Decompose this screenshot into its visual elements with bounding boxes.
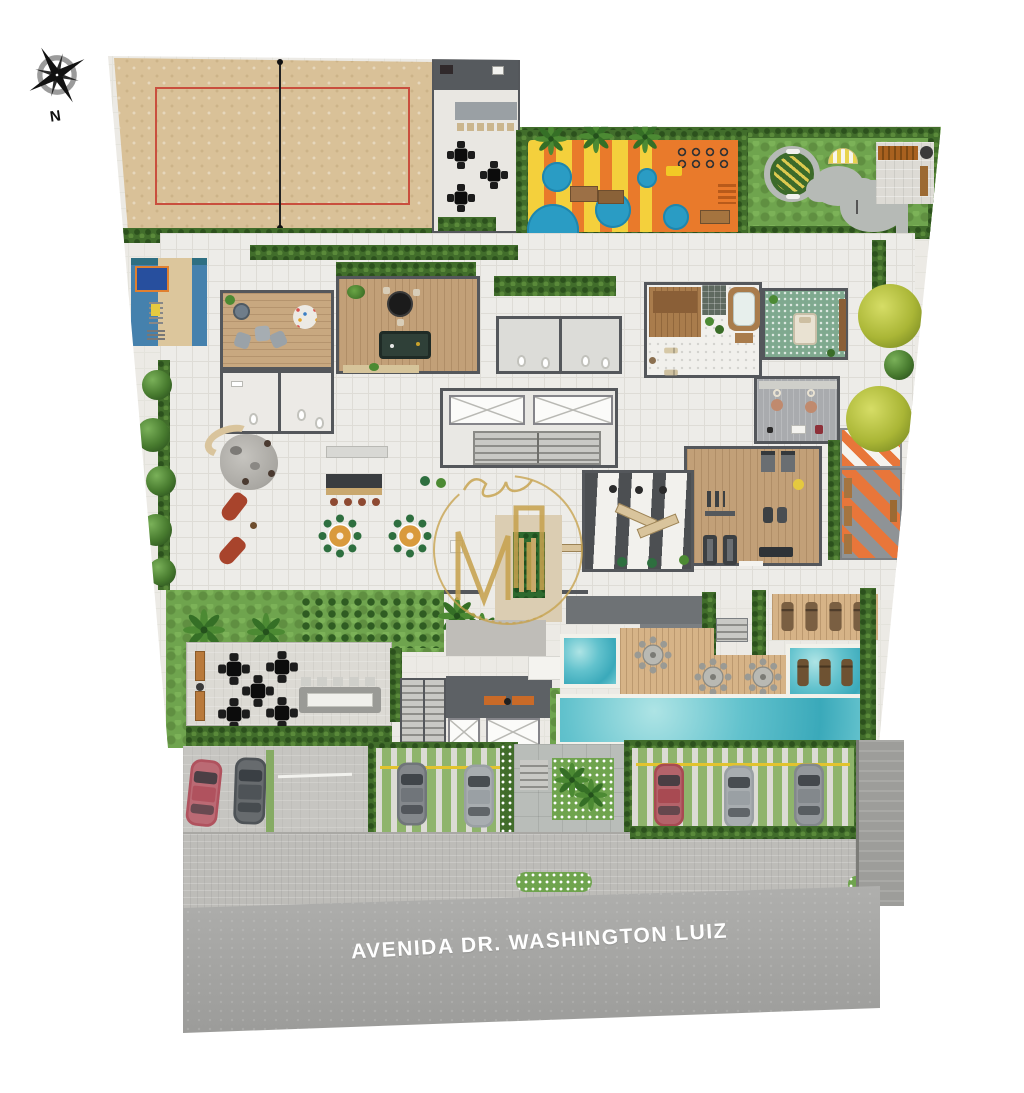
bench-icon bbox=[195, 691, 205, 721]
bar-counter bbox=[326, 474, 382, 492]
bench-icon bbox=[920, 166, 928, 196]
poker-table-icon bbox=[387, 291, 413, 317]
entrance-planter bbox=[552, 758, 614, 820]
bench-press-icon bbox=[703, 535, 717, 565]
hedge-row bbox=[250, 245, 518, 260]
table-cluster-icon bbox=[265, 696, 299, 730]
plant-icon bbox=[225, 295, 235, 305]
zone-parking bbox=[183, 746, 883, 836]
garage-ramp bbox=[856, 740, 904, 906]
gym-item bbox=[151, 304, 160, 316]
planter-pot bbox=[436, 478, 446, 488]
hedge-col bbox=[828, 440, 840, 560]
sun-lounger-icon bbox=[804, 599, 819, 634]
plant-icon bbox=[715, 325, 724, 334]
climbing-rings bbox=[676, 146, 732, 168]
bar-stool-icon bbox=[330, 498, 338, 506]
terrace-hedge-south bbox=[186, 726, 392, 746]
armchair-icon bbox=[254, 325, 270, 341]
permeable-stalls bbox=[632, 748, 854, 830]
sidewalk-hedge bbox=[630, 826, 858, 839]
steps-mark bbox=[718, 184, 736, 204]
yellow-tree-icon bbox=[858, 284, 922, 348]
pot-icon bbox=[264, 440, 271, 447]
hedge-row bbox=[494, 276, 616, 296]
grill-icon bbox=[920, 146, 933, 159]
plant-icon bbox=[679, 555, 689, 565]
tub-step bbox=[735, 333, 753, 343]
toilet-icon bbox=[581, 355, 590, 367]
weight-station-icon bbox=[707, 491, 725, 507]
bench-icon bbox=[844, 478, 852, 498]
billiards-table-icon bbox=[379, 331, 431, 359]
tree-icon bbox=[884, 350, 914, 380]
round-rug bbox=[293, 305, 317, 329]
bench-icon bbox=[890, 500, 897, 522]
room-lounge bbox=[220, 290, 334, 370]
toilet-icon bbox=[601, 357, 610, 369]
bench-icon bbox=[195, 651, 205, 681]
pet-gate-mark bbox=[786, 194, 800, 199]
plant-icon bbox=[617, 557, 627, 567]
kids-pool bbox=[560, 634, 620, 688]
salon-chair-icon bbox=[805, 401, 817, 413]
sink-icon bbox=[231, 381, 243, 387]
site-plan-canvas: AVENIDA DR. WASHINGTON LUIZ N bbox=[0, 0, 1024, 1093]
pet-agility-bars bbox=[774, 156, 810, 192]
play-mound bbox=[637, 168, 657, 188]
stairs bbox=[400, 678, 446, 750]
bench-pad bbox=[727, 539, 733, 561]
stool-icon bbox=[659, 486, 667, 494]
yellow-tree-icon bbox=[846, 386, 912, 452]
car-icon bbox=[395, 756, 429, 832]
billiard-ball bbox=[390, 344, 394, 348]
bench-icon bbox=[450, 540, 463, 553]
play-item bbox=[666, 166, 682, 176]
toilet-icon bbox=[517, 355, 526, 367]
play-mound bbox=[663, 204, 689, 230]
side-table-icon bbox=[196, 683, 204, 691]
wood-bar bbox=[531, 538, 536, 592]
entrance-steps bbox=[520, 760, 548, 790]
dining-table-icon bbox=[388, 514, 432, 558]
parasol-table-icon bbox=[634, 636, 672, 674]
salon-chair-icon bbox=[771, 399, 783, 411]
round-table-icon bbox=[233, 303, 250, 320]
play-bench bbox=[700, 210, 730, 224]
long-table-chairs bbox=[301, 715, 381, 724]
treadmill-icon bbox=[761, 451, 775, 472]
tree-icon bbox=[148, 558, 176, 586]
bar-stool-icon bbox=[372, 498, 380, 506]
courtyard-planter bbox=[513, 532, 545, 598]
treadmill-icon bbox=[781, 451, 795, 472]
net-post bbox=[277, 59, 283, 65]
bike-icon bbox=[777, 507, 787, 523]
court-line bbox=[155, 87, 410, 205]
sink-icon bbox=[492, 66, 504, 75]
grass-wedge bbox=[266, 750, 274, 836]
compass: N bbox=[22, 42, 92, 132]
site-grounds bbox=[0, 0, 1024, 790]
bar-front bbox=[326, 488, 382, 495]
side-table-icon bbox=[649, 357, 656, 364]
bar-stool-icon bbox=[358, 498, 366, 506]
zone-playground bbox=[516, 130, 748, 236]
car-icon bbox=[722, 759, 756, 835]
bike-icon bbox=[763, 507, 773, 523]
play-structure bbox=[570, 186, 598, 202]
wood-bar bbox=[519, 538, 524, 592]
sauna-bench-upper bbox=[653, 291, 697, 313]
zone-volleyball-court bbox=[108, 56, 434, 234]
pergola-patio bbox=[876, 142, 934, 204]
plant-icon bbox=[347, 285, 365, 299]
plant-icon bbox=[769, 295, 778, 304]
plant-icon bbox=[369, 363, 379, 371]
weight-bar-icon bbox=[705, 511, 735, 516]
armchair-icon bbox=[233, 331, 252, 350]
plunge-tub bbox=[728, 287, 760, 331]
table-cluster-icon bbox=[446, 140, 476, 170]
plant-icon bbox=[827, 349, 835, 357]
wet-lounger-icon bbox=[796, 656, 810, 689]
massage-bed bbox=[793, 313, 817, 345]
room-core-wc bbox=[496, 316, 622, 374]
car-icon bbox=[652, 757, 686, 833]
buffet-counter bbox=[326, 446, 388, 458]
hedge-col bbox=[872, 240, 886, 290]
car-icon bbox=[462, 758, 496, 834]
styling-item bbox=[767, 427, 773, 433]
salon-counter bbox=[759, 381, 837, 389]
chair-icon bbox=[397, 319, 404, 326]
zone-terrace bbox=[186, 642, 392, 726]
pet-gate-mark bbox=[786, 149, 800, 154]
bench-press-icon bbox=[723, 535, 737, 565]
wet-lounger-icon bbox=[840, 656, 854, 689]
swing-icon bbox=[856, 200, 858, 214]
tree-icon bbox=[146, 466, 176, 496]
chaise-icon bbox=[218, 490, 249, 523]
zone-snack-patio bbox=[432, 58, 520, 233]
stool-icon bbox=[635, 486, 643, 494]
flower-bush bbox=[516, 872, 592, 892]
pot-icon bbox=[242, 478, 249, 485]
compass-rose-icon bbox=[12, 30, 102, 120]
room-games bbox=[336, 276, 480, 374]
wall-divider bbox=[559, 319, 562, 371]
billiard-ball bbox=[416, 342, 420, 346]
permeable-stalls bbox=[376, 748, 510, 832]
chair-icon bbox=[383, 287, 390, 294]
bench-icon bbox=[844, 534, 852, 554]
zen-stone bbox=[250, 462, 260, 470]
wash-basin bbox=[791, 425, 806, 434]
tree-icon bbox=[140, 514, 172, 546]
side-table-icon bbox=[250, 522, 257, 529]
play-structure bbox=[598, 190, 624, 204]
parasol-table-icon bbox=[694, 658, 732, 696]
entrance-walkway bbox=[514, 744, 630, 838]
bar-stool-icon bbox=[344, 498, 352, 506]
exercise-ball-icon bbox=[793, 479, 804, 490]
play-mound bbox=[542, 162, 572, 192]
table-cluster-icon bbox=[479, 160, 509, 190]
tub-water bbox=[733, 292, 755, 326]
bench-icon bbox=[844, 506, 852, 526]
palm-tree-icon bbox=[578, 118, 614, 154]
stool-icon bbox=[609, 485, 617, 493]
stair-rail bbox=[423, 680, 425, 748]
bench-icon bbox=[484, 696, 506, 705]
sideboard bbox=[343, 365, 419, 373]
courtyard-pad bbox=[495, 515, 562, 622]
armchair-icon bbox=[269, 330, 289, 350]
cabinet bbox=[839, 299, 846, 351]
room-spa bbox=[644, 282, 762, 378]
room-massage bbox=[762, 288, 848, 360]
long-table bbox=[299, 687, 381, 713]
bar-counter bbox=[455, 102, 517, 120]
mirror-icon bbox=[807, 389, 815, 397]
pot-icon bbox=[268, 470, 275, 477]
flower-hedge-col bbox=[500, 744, 514, 838]
tree-icon bbox=[136, 418, 170, 452]
parasol-table-icon bbox=[744, 658, 782, 696]
pool-hedge-right bbox=[860, 588, 876, 748]
door-gap bbox=[739, 561, 763, 566]
room-kids-gym-deck bbox=[131, 258, 207, 346]
main-pool bbox=[556, 694, 878, 746]
pool-stairs bbox=[716, 618, 748, 642]
sauna-benches bbox=[649, 287, 701, 337]
long-table-chairs bbox=[301, 677, 381, 686]
room-salon bbox=[754, 376, 840, 444]
mirror-icon bbox=[773, 389, 781, 397]
patio-hedge bbox=[438, 217, 496, 231]
palm-tree-icon bbox=[534, 122, 568, 156]
wet-tile bbox=[702, 285, 726, 315]
chaise-icon bbox=[216, 534, 248, 567]
pool-planter-col bbox=[752, 590, 766, 658]
path-to-lobby bbox=[446, 620, 546, 656]
dumbbell-rack-icon bbox=[759, 547, 793, 557]
planter-pot bbox=[504, 698, 511, 705]
gym-item bbox=[147, 330, 165, 340]
pergola-roof bbox=[878, 146, 918, 160]
planter-pot bbox=[420, 476, 430, 486]
styling-item bbox=[815, 425, 823, 434]
compass-north-label: N bbox=[49, 107, 62, 125]
bench-icon bbox=[512, 696, 534, 705]
palm-tree-icon bbox=[574, 778, 608, 812]
sun-lounger-icon bbox=[780, 599, 795, 634]
toilet-icon bbox=[541, 357, 550, 369]
lobby-floor bbox=[446, 676, 552, 718]
pool-paved-court bbox=[566, 596, 702, 624]
chair-icon bbox=[413, 289, 420, 296]
room-gym bbox=[684, 446, 822, 566]
wet-lounger-icon bbox=[818, 656, 832, 689]
bench-pad bbox=[707, 539, 713, 561]
car-icon bbox=[792, 757, 826, 833]
play-mat bbox=[135, 266, 169, 292]
table-cluster-icon bbox=[446, 183, 476, 213]
zone-outdoor-fitness bbox=[840, 468, 902, 560]
spa-lounger-icon bbox=[664, 355, 679, 391]
room-zebra-lounge bbox=[582, 470, 694, 572]
net-line bbox=[279, 61, 281, 231]
car-icon bbox=[231, 751, 270, 830]
plant-icon bbox=[647, 558, 657, 568]
bar-stools bbox=[457, 123, 515, 131]
palm-tree-icon bbox=[628, 120, 662, 154]
plant-icon bbox=[705, 317, 714, 326]
shrub-rows bbox=[300, 596, 440, 648]
sun-lounger-icon bbox=[828, 599, 843, 634]
grill-icon bbox=[440, 65, 453, 74]
tree-icon bbox=[142, 370, 172, 400]
long-table-top bbox=[307, 693, 373, 707]
pillow bbox=[799, 317, 811, 323]
dining-table-icon bbox=[318, 514, 362, 558]
